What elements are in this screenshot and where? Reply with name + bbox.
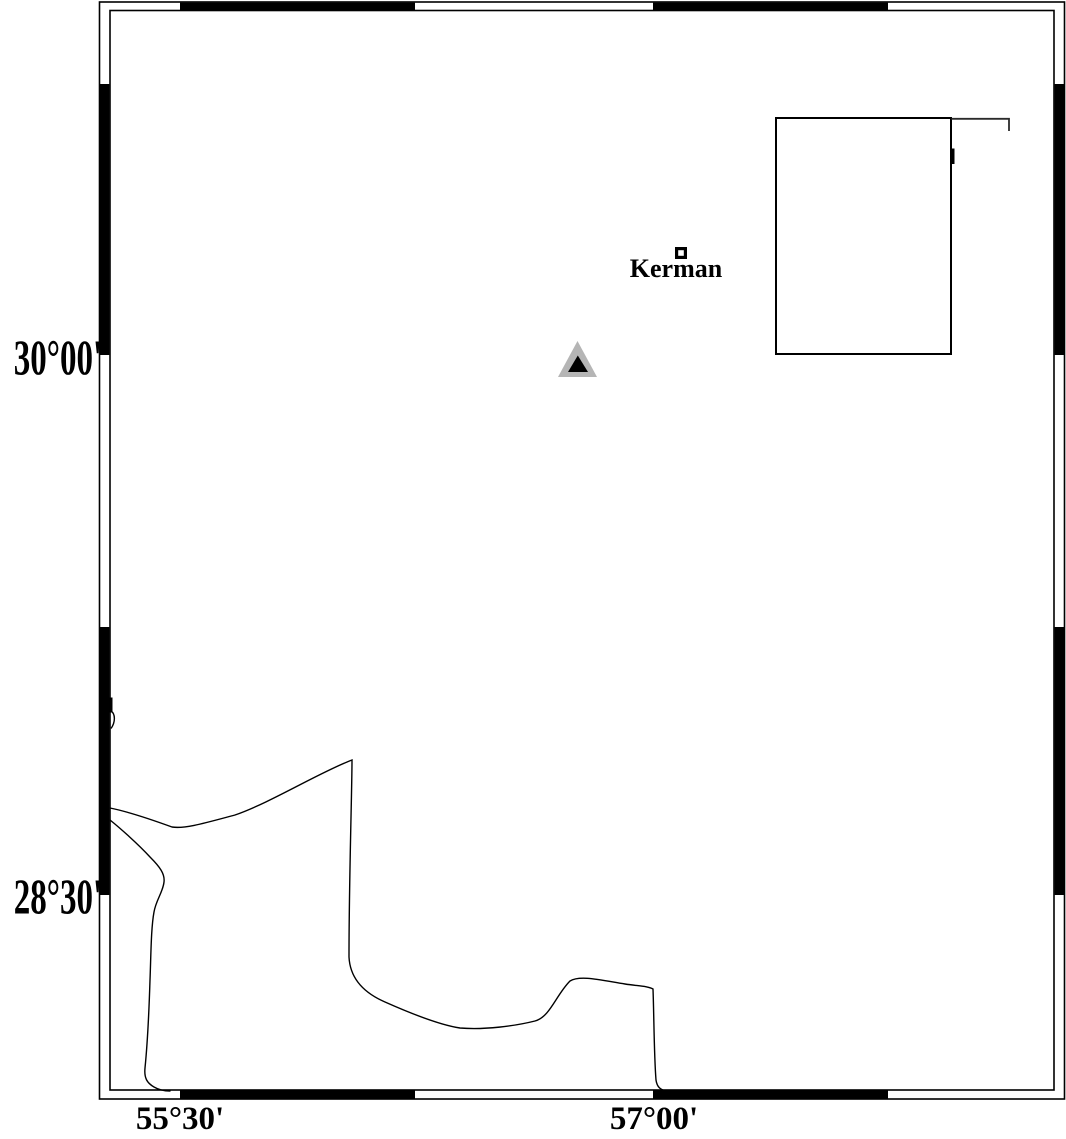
contour-line-b [110, 820, 170, 1091]
frame-band-right-2 [1055, 627, 1064, 895]
axis-label-lat-30-00: 30°00' [14, 332, 93, 382]
contour-fragment-west [109, 698, 113, 713]
inset-box [776, 118, 951, 354]
frame-band-bottom-1 [180, 1090, 415, 1099]
axis-label-lon-55-30: 55°30' [70, 1102, 290, 1136]
frame-band-top-1 [180, 3, 415, 11]
map-graphics [0, 0, 1066, 1139]
contour-fragment-west-tail [111, 711, 114, 729]
frame-band-bottom-2 [653, 1090, 888, 1099]
map-canvas: 30°00' 28°30' 55°30' 57°00' Kerman [0, 0, 1066, 1139]
contour-line-a [110, 760, 669, 1092]
city-label-kerman: Kerman [576, 256, 776, 282]
line-fragment-top-right [952, 119, 1010, 131]
axis-label-lat-28-30: 28°30' [14, 871, 93, 921]
axis-label-lon-57-00: 57°00' [544, 1102, 764, 1136]
tick-fragment-inset-edge [951, 149, 955, 165]
frame-band-left-2 [100, 627, 109, 895]
frame-band-top-2 [653, 3, 888, 11]
frame-band-left-1 [100, 84, 109, 355]
frame-band-right-1 [1055, 84, 1064, 355]
